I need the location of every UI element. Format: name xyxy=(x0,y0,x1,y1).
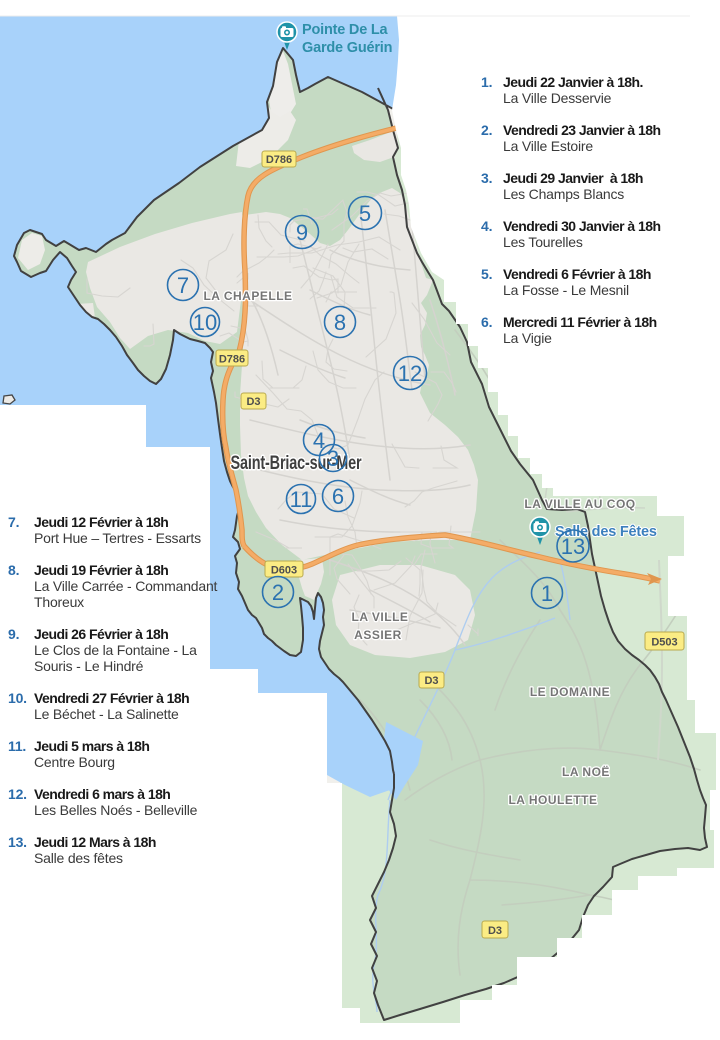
svg-text:LA VILLE: LA VILLE xyxy=(352,610,409,624)
svg-text:12: 12 xyxy=(398,361,422,386)
svg-text:13: 13 xyxy=(561,534,585,559)
svg-text:LA CHAPELLE: LA CHAPELLE xyxy=(203,289,292,303)
svg-text:LA NOË: LA NOË xyxy=(562,764,610,779)
svg-text:D786: D786 xyxy=(266,154,292,166)
svg-text:Saint-Briac-sur-Mer: Saint-Briac-sur-Mer xyxy=(231,452,363,473)
svg-text:D3: D3 xyxy=(488,925,502,937)
svg-text:LA VILLE AU COQ: LA VILLE AU COQ xyxy=(524,497,635,511)
svg-text:2: 2 xyxy=(272,580,284,605)
svg-text:D603: D603 xyxy=(271,565,297,577)
svg-text:ASSIER: ASSIER xyxy=(354,628,402,642)
svg-text:5: 5 xyxy=(359,201,371,226)
svg-text:Pointe De La: Pointe De La xyxy=(302,22,389,38)
svg-text:D3: D3 xyxy=(246,396,260,408)
svg-text:4: 4 xyxy=(313,428,325,453)
svg-text:Garde Guérin: Garde Guérin xyxy=(302,40,392,56)
svg-text:LE DOMAINE: LE DOMAINE xyxy=(530,685,610,699)
svg-text:D503: D503 xyxy=(651,637,677,649)
svg-text:D3: D3 xyxy=(424,675,438,687)
svg-text:11: 11 xyxy=(290,487,313,512)
svg-text:6: 6 xyxy=(332,484,344,509)
svg-text:7: 7 xyxy=(177,273,189,298)
svg-text:D786: D786 xyxy=(219,354,245,366)
svg-text:9: 9 xyxy=(296,220,308,245)
svg-text:3: 3 xyxy=(327,446,339,471)
svg-text:LA HOULETTE: LA HOULETTE xyxy=(508,793,597,807)
svg-text:8: 8 xyxy=(334,310,346,335)
svg-text:10: 10 xyxy=(193,310,217,335)
svg-text:1: 1 xyxy=(541,581,553,606)
